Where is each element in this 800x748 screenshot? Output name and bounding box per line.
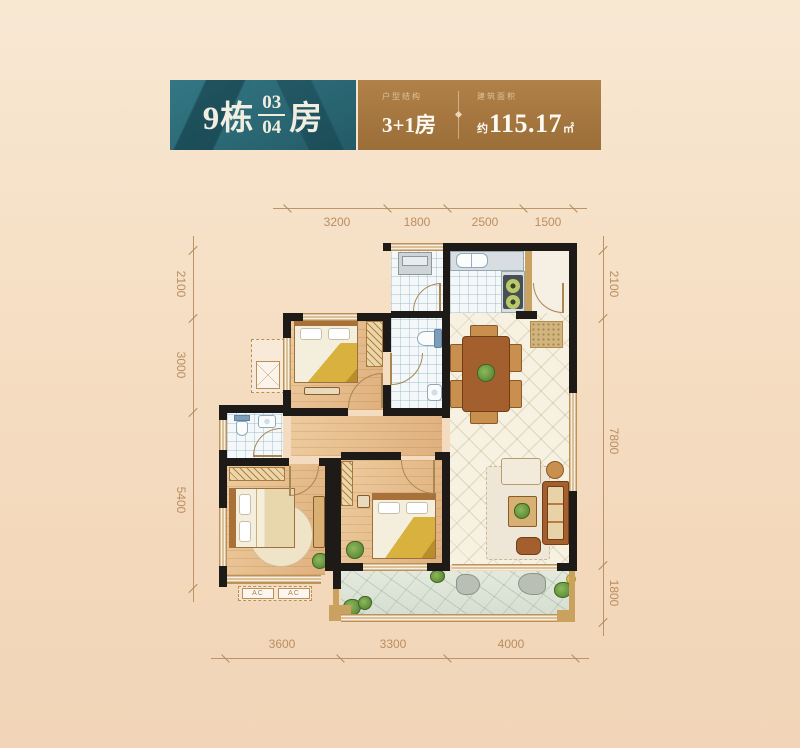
wall-bedroom3-bottom-left: [341, 563, 363, 571]
master-pillow-2: [239, 521, 251, 542]
master-wardrobe: [229, 467, 285, 481]
utility-door-leaf: [439, 283, 441, 311]
wall-bedroom3-top-left: [341, 452, 401, 460]
wall-bathroom-right: [442, 313, 450, 416]
dining-chair-right-2: [509, 380, 522, 408]
bedroom-3-blanket: [373, 517, 435, 558]
dim-right-3: 1800: [607, 580, 621, 607]
wall-bedroom3-right: [442, 452, 450, 571]
dim-bottom-3: 4000: [498, 637, 525, 651]
dim-left-1: 2100: [174, 271, 188, 298]
dim-line-right: [603, 236, 604, 636]
wall-living-bottom-stub: [557, 563, 577, 571]
balcony-sliding-door: [452, 564, 557, 570]
wall-balcony-left: [333, 563, 341, 589]
bedroom-3-nightstand: [357, 495, 370, 508]
bedroom-2-door-leaf: [381, 373, 383, 408]
bedroom-3-headboard: [372, 493, 436, 500]
wall-utility-kitchen-divider: [443, 243, 450, 313]
dim-top-3: 2500: [472, 215, 499, 229]
washer-door: [402, 256, 428, 266]
bathroom-door-leaf: [390, 353, 392, 385]
sofa-cushions: [547, 486, 564, 540]
window-bedroom2-left: [283, 338, 291, 390]
balcony-corner-post-right: [557, 610, 575, 622]
dining-chair-right-1: [509, 344, 522, 372]
bedroom-2-bench: [304, 387, 340, 395]
dim-right-1: 2100: [607, 271, 621, 298]
entry-door-mat: [530, 321, 563, 348]
toilet-tank: [434, 329, 442, 348]
bedroom-3-door-leaf: [433, 460, 435, 494]
window-bedroom3: [363, 563, 427, 571]
bedroom-2-blanket: [295, 343, 357, 382]
window-bedroom2-top: [303, 313, 357, 321]
master-pillow-1: [239, 494, 251, 515]
wall-master-bedroom3-divider: [325, 458, 341, 571]
floor-plan: AC AC: [0, 0, 800, 748]
dim-top-1: 3200: [324, 215, 351, 229]
wall-bathroom-bottom: [383, 408, 450, 416]
armchair: [501, 458, 541, 485]
dim-left-3: 5400: [174, 487, 188, 514]
ac-box-2: AC: [278, 588, 310, 599]
ac-box-1: AC: [242, 588, 274, 599]
balcony-rock-2: [518, 573, 546, 595]
wall-master-bathroom-top: [219, 405, 283, 413]
dim-line-bottom: [211, 658, 589, 659]
bathroom-sink: [427, 384, 442, 401]
corridor-floor: [291, 416, 442, 456]
bedroom-2-wardrobe: [366, 321, 383, 367]
wall-master-top-left: [219, 458, 289, 466]
bedroom-2-pillow-2: [328, 328, 350, 340]
window-living: [569, 393, 577, 491]
window-utility: [391, 243, 443, 251]
bedroom-3-pillow-1: [378, 502, 400, 514]
dim-left-2: 3000: [174, 352, 188, 379]
stove-burner-1: [506, 279, 520, 293]
bedroom-3-pillow-2: [406, 502, 428, 514]
balcony-bottom-rail: [341, 614, 573, 622]
dim-bottom-1: 3600: [269, 637, 296, 651]
dim-line-top: [273, 208, 587, 209]
wall-living-left-upper: [442, 404, 450, 418]
master-headboard: [229, 488, 236, 548]
master-blanket: [256, 489, 294, 547]
dim-bottom-2: 3300: [380, 637, 407, 651]
wall-bedroom3-bottom-right: [427, 563, 450, 571]
master-dresser: [313, 496, 325, 548]
dining-chair-bottom: [470, 411, 498, 424]
wall-bedroom2-bottom: [283, 408, 348, 416]
balcony-rock-1: [456, 574, 480, 595]
pouf: [516, 537, 541, 555]
side-table: [546, 461, 564, 479]
bedroom-3-closet: [341, 461, 353, 506]
kitchen-door-frame: [525, 251, 532, 311]
dim-top-2: 1800: [404, 215, 431, 229]
dim-line-left: [193, 236, 194, 602]
window-master-bathroom: [219, 420, 227, 450]
wall-bathroom-left-upper: [383, 313, 391, 352]
master-bathroom-sink: [258, 415, 276, 428]
entry-door-leaf: [562, 283, 564, 313]
stove-burner-2: [506, 295, 520, 309]
dim-right-2: 7800: [607, 428, 621, 455]
master-toilet: [236, 421, 248, 436]
kitchen-sink: [456, 253, 488, 268]
dim-top-4: 1500: [535, 215, 562, 229]
master-door-leaf: [289, 466, 291, 496]
wall-kitchen-stub: [516, 311, 537, 319]
master-bay-window: [227, 575, 321, 584]
window-master-bedroom: [219, 508, 227, 566]
ac-unit-icon: [256, 361, 280, 389]
master-bathroom-door-leaf: [253, 455, 282, 457]
sink-divider: [471, 254, 472, 267]
bedroom-2-pillow-1: [300, 328, 322, 340]
